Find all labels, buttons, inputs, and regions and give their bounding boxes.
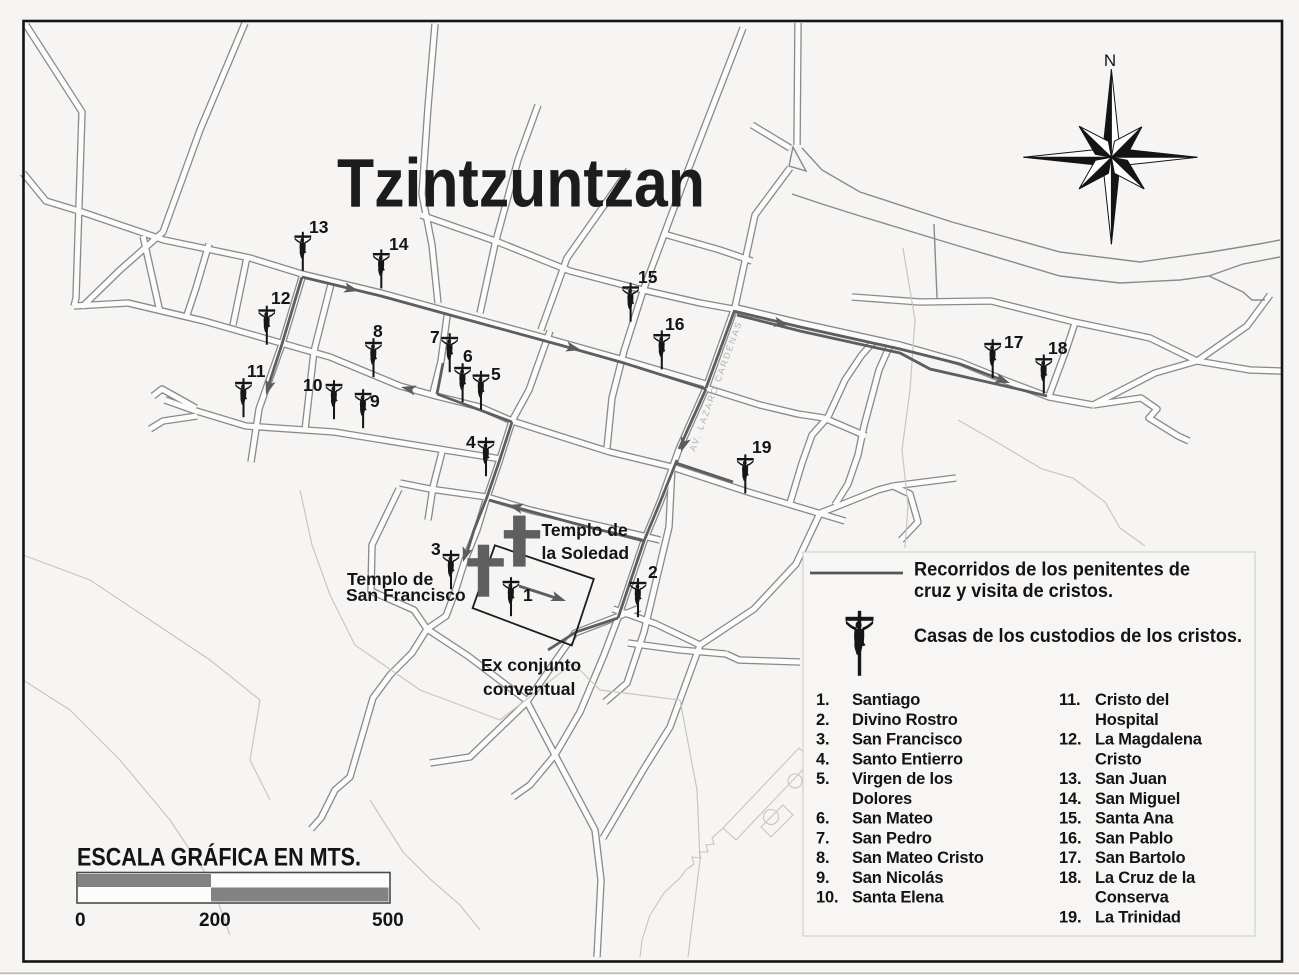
svg-text:La Magdalena: La Magdalena (1095, 731, 1203, 749)
svg-text:conventual: conventual (483, 679, 575, 699)
svg-text:Tzintzuntzan: Tzintzuntzan (337, 145, 705, 222)
svg-text:16.: 16. (1059, 829, 1081, 847)
svg-text:9: 9 (370, 391, 380, 411)
svg-text:6: 6 (463, 346, 473, 366)
svg-text:11.: 11. (1059, 691, 1080, 709)
svg-text:4.: 4. (816, 750, 829, 768)
svg-text:19.: 19. (1059, 908, 1081, 926)
svg-text:San Pablo: San Pablo (1095, 829, 1173, 847)
svg-text:14: 14 (389, 234, 409, 254)
svg-text:15: 15 (638, 267, 658, 287)
svg-text:Santa Elena: Santa Elena (852, 889, 944, 907)
svg-text:San Pedro: San Pedro (852, 829, 932, 847)
svg-text:Divino Rostro: Divino Rostro (852, 711, 958, 729)
svg-text:Conserva: Conserva (1095, 889, 1170, 907)
svg-text:9.: 9. (816, 869, 829, 887)
svg-text:17: 17 (1004, 332, 1023, 352)
svg-text:ESCALA GRÁFICA EN MTS.: ESCALA GRÁFICA EN MTS. (77, 843, 361, 872)
svg-text:San Mateo Cristo: San Mateo Cristo (852, 849, 984, 867)
svg-text:San Juan: San Juan (1095, 770, 1167, 788)
svg-text:Santa Ana: Santa Ana (1095, 810, 1174, 828)
svg-text:13.: 13. (1059, 770, 1081, 788)
svg-text:12: 12 (271, 288, 291, 308)
svg-text:Hospital: Hospital (1095, 711, 1159, 729)
svg-text:200: 200 (199, 910, 231, 931)
svg-text:8: 8 (373, 321, 383, 341)
svg-text:2: 2 (648, 562, 658, 582)
svg-text:Templo de: Templo de (542, 520, 628, 540)
svg-text:San Miguel: San Miguel (1095, 790, 1180, 808)
svg-text:Recorridos de los penitentes d: Recorridos de los penitentes de (914, 560, 1190, 581)
svg-text:18.: 18. (1059, 869, 1081, 887)
svg-text:16: 16 (665, 314, 685, 334)
svg-text:Cristo del: Cristo del (1095, 691, 1169, 709)
svg-text:12.: 12. (1059, 731, 1081, 749)
svg-text:Santiago: Santiago (852, 691, 920, 709)
svg-text:Ex conjunto: Ex conjunto (481, 655, 581, 675)
svg-text:10: 10 (303, 375, 323, 395)
svg-text:7.: 7. (816, 829, 829, 847)
svg-text:San Nicolás: San Nicolás (852, 869, 943, 887)
svg-text:Dolores: Dolores (852, 790, 912, 808)
svg-text:N: N (1104, 51, 1116, 70)
svg-text:La Trinidad: La Trinidad (1095, 908, 1181, 926)
svg-text:Cristo: Cristo (1095, 750, 1142, 768)
svg-text:15.: 15. (1059, 810, 1081, 828)
svg-text:19: 19 (752, 437, 772, 457)
svg-text:500: 500 (372, 910, 404, 931)
svg-text:5: 5 (491, 364, 501, 384)
svg-text:San Bartolo: San Bartolo (1095, 849, 1186, 867)
svg-text:1.: 1. (816, 691, 829, 709)
svg-text:cruz y visita de cristos.: cruz y visita de cristos. (914, 581, 1113, 602)
svg-text:San Francisco: San Francisco (852, 731, 962, 749)
svg-text:10.: 10. (816, 889, 838, 907)
svg-text:8.: 8. (816, 849, 829, 867)
svg-text:2.: 2. (816, 711, 829, 729)
svg-text:3.: 3. (816, 731, 829, 749)
svg-text:11: 11 (247, 361, 266, 381)
svg-text:0: 0 (75, 910, 86, 931)
svg-text:La Cruz de la: La Cruz de la (1095, 869, 1196, 887)
svg-text:3: 3 (431, 539, 441, 559)
svg-text:Santo Entierro: Santo Entierro (852, 750, 963, 768)
svg-text:13: 13 (309, 217, 329, 237)
svg-text:Virgen de los: Virgen de los (852, 770, 953, 788)
svg-text:14.: 14. (1059, 790, 1081, 808)
svg-text:7: 7 (430, 327, 440, 347)
svg-text:Casas de los custodios de los: Casas de los custodios de los cristos. (914, 626, 1242, 647)
svg-text:la Soledad: la Soledad (542, 543, 630, 563)
svg-text:4: 4 (466, 432, 476, 452)
svg-text:5.: 5. (816, 770, 829, 788)
svg-text:San Mateo: San Mateo (852, 810, 933, 828)
svg-text:San Francisco: San Francisco (346, 585, 466, 605)
svg-text:18: 18 (1048, 338, 1068, 358)
svg-text:17.: 17. (1059, 849, 1081, 867)
svg-text:1: 1 (523, 585, 533, 605)
svg-text:6.: 6. (816, 810, 829, 828)
